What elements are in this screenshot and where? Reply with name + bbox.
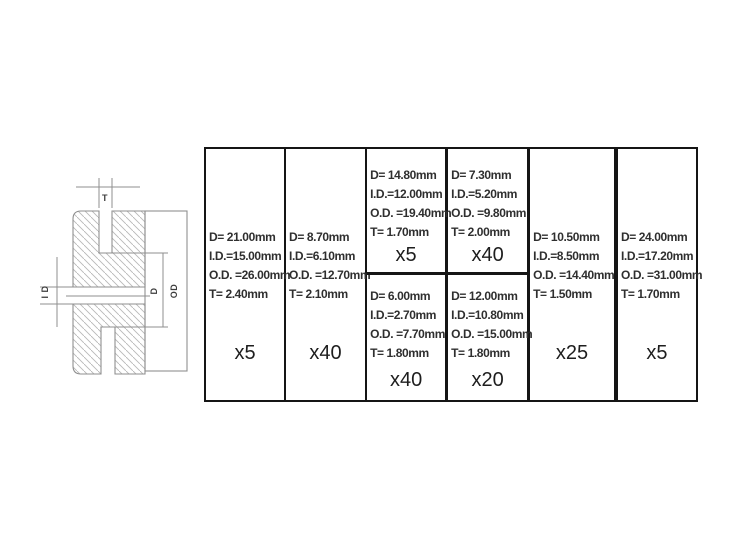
spec-line-od: O.D. =14.40mm [530, 266, 614, 285]
label-t: T [102, 193, 108, 203]
spec-line-d: D= 10.50mm [530, 228, 614, 247]
page: T I D D OD D= 21.00mm I.D.=15.00mm O.D. … [0, 0, 733, 550]
spec-cell: D= 8.70mm I.D.=6.10mm O.D. =12.70mm T= 2… [286, 149, 365, 400]
spec-line-t: T= 2.00mm [448, 223, 527, 242]
label-d: D [149, 288, 159, 295]
spec-line-id: I.D.=10.80mm [448, 306, 527, 325]
quantity-label: x5 [206, 342, 284, 365]
spec-line-od: O.D. =31.00mm [618, 266, 696, 285]
spec-cell: D= 10.50mm I.D.=8.50mm O.D. =14.40mm T= … [530, 149, 614, 400]
spec-line-d: D= 8.70mm [286, 228, 365, 247]
quantity-label: x40 [286, 342, 365, 365]
spec-line-t: T= 2.10mm [286, 285, 365, 304]
spec-line-d: D= 7.30mm [448, 166, 527, 185]
label-od: OD [169, 284, 179, 299]
spec-cell: D= 24.00mm I.D.=17.20mm O.D. =31.00mm T=… [618, 149, 696, 400]
spec-line-od: O.D. =12.70mm [286, 266, 365, 285]
quantity-label: x5 [367, 244, 445, 267]
spec-cell: D= 6.00mm I.D.=2.70mm O.D. =7.70mm T= 1.… [367, 275, 445, 400]
spec-column-1: D= 21.00mm I.D.=15.00mm O.D. =26.00mm T=… [206, 149, 286, 400]
spec-line-id: I.D.=5.20mm [448, 185, 527, 204]
label-id: I D [40, 285, 50, 298]
spec-line-d: D= 12.00mm [448, 287, 527, 306]
spec-line-d: D= 21.00mm [206, 228, 284, 247]
spec-line-id: I.D.=2.70mm [367, 306, 445, 325]
spec-cell: D= 7.30mm I.D.=5.20mm O.D. =9.80mm T= 2.… [448, 149, 527, 275]
spec-column-5: D= 10.50mm I.D.=8.50mm O.D. =14.40mm T= … [530, 149, 618, 400]
spec-line-t: T= 1.80mm [448, 344, 527, 363]
spec-line-id: I.D.=17.20mm [618, 247, 696, 266]
spec-line-t: T= 2.40mm [206, 285, 284, 304]
quantity-label: x40 [367, 369, 445, 392]
spec-column-4: D= 7.30mm I.D.=5.20mm O.D. =9.80mm T= 2.… [448, 149, 530, 400]
spec-line-d: D= 6.00mm [367, 287, 445, 306]
grommet-section-lower [73, 304, 145, 374]
spec-line-t: T= 1.80mm [367, 344, 445, 363]
spec-column-3: D= 14.80mm I.D.=12.00mm O.D. =19.40mm T=… [367, 149, 448, 400]
spec-line-od: O.D. =7.70mm [367, 325, 445, 344]
spec-line-id: I.D.=6.10mm [286, 247, 365, 266]
spec-line-id: I.D.=8.50mm [530, 247, 614, 266]
spec-table: D= 21.00mm I.D.=15.00mm O.D. =26.00mm T=… [204, 147, 698, 402]
spec-line-d: D= 24.00mm [618, 228, 696, 247]
spec-column-6: D= 24.00mm I.D.=17.20mm O.D. =31.00mm T=… [618, 149, 696, 400]
spec-line-t: T= 1.70mm [618, 285, 696, 304]
spec-column-2: D= 8.70mm I.D.=6.10mm O.D. =12.70mm T= 2… [286, 149, 367, 400]
quantity-label: x20 [448, 369, 527, 392]
spec-line-d: D= 14.80mm [367, 166, 445, 185]
grommet-cross-section-diagram: T I D D OD [35, 170, 195, 382]
quantity-label: x5 [618, 342, 696, 365]
spec-line-t: T= 1.70mm [367, 223, 445, 242]
spec-line-od: O.D. =15.00mm [448, 325, 527, 344]
spec-cell: D= 14.80mm I.D.=12.00mm O.D. =19.40mm T=… [367, 149, 445, 275]
spec-line-t: T= 1.50mm [530, 285, 614, 304]
spec-cell: D= 12.00mm I.D.=10.80mm O.D. =15.00mm T=… [448, 275, 527, 400]
spec-line-id: I.D.=15.00mm [206, 247, 284, 266]
spec-line-od: O.D. =19.40mm [367, 204, 445, 223]
spec-cell: D= 21.00mm I.D.=15.00mm O.D. =26.00mm T=… [206, 149, 284, 400]
grommet-section-upper [73, 211, 145, 287]
quantity-label: x25 [530, 342, 614, 365]
dimension-t [76, 178, 140, 208]
spec-line-id: I.D.=12.00mm [367, 185, 445, 204]
quantity-label: x40 [448, 244, 527, 267]
spec-line-od: O.D. =9.80mm [448, 204, 527, 223]
spec-line-od: O.D. =26.00mm [206, 266, 284, 285]
